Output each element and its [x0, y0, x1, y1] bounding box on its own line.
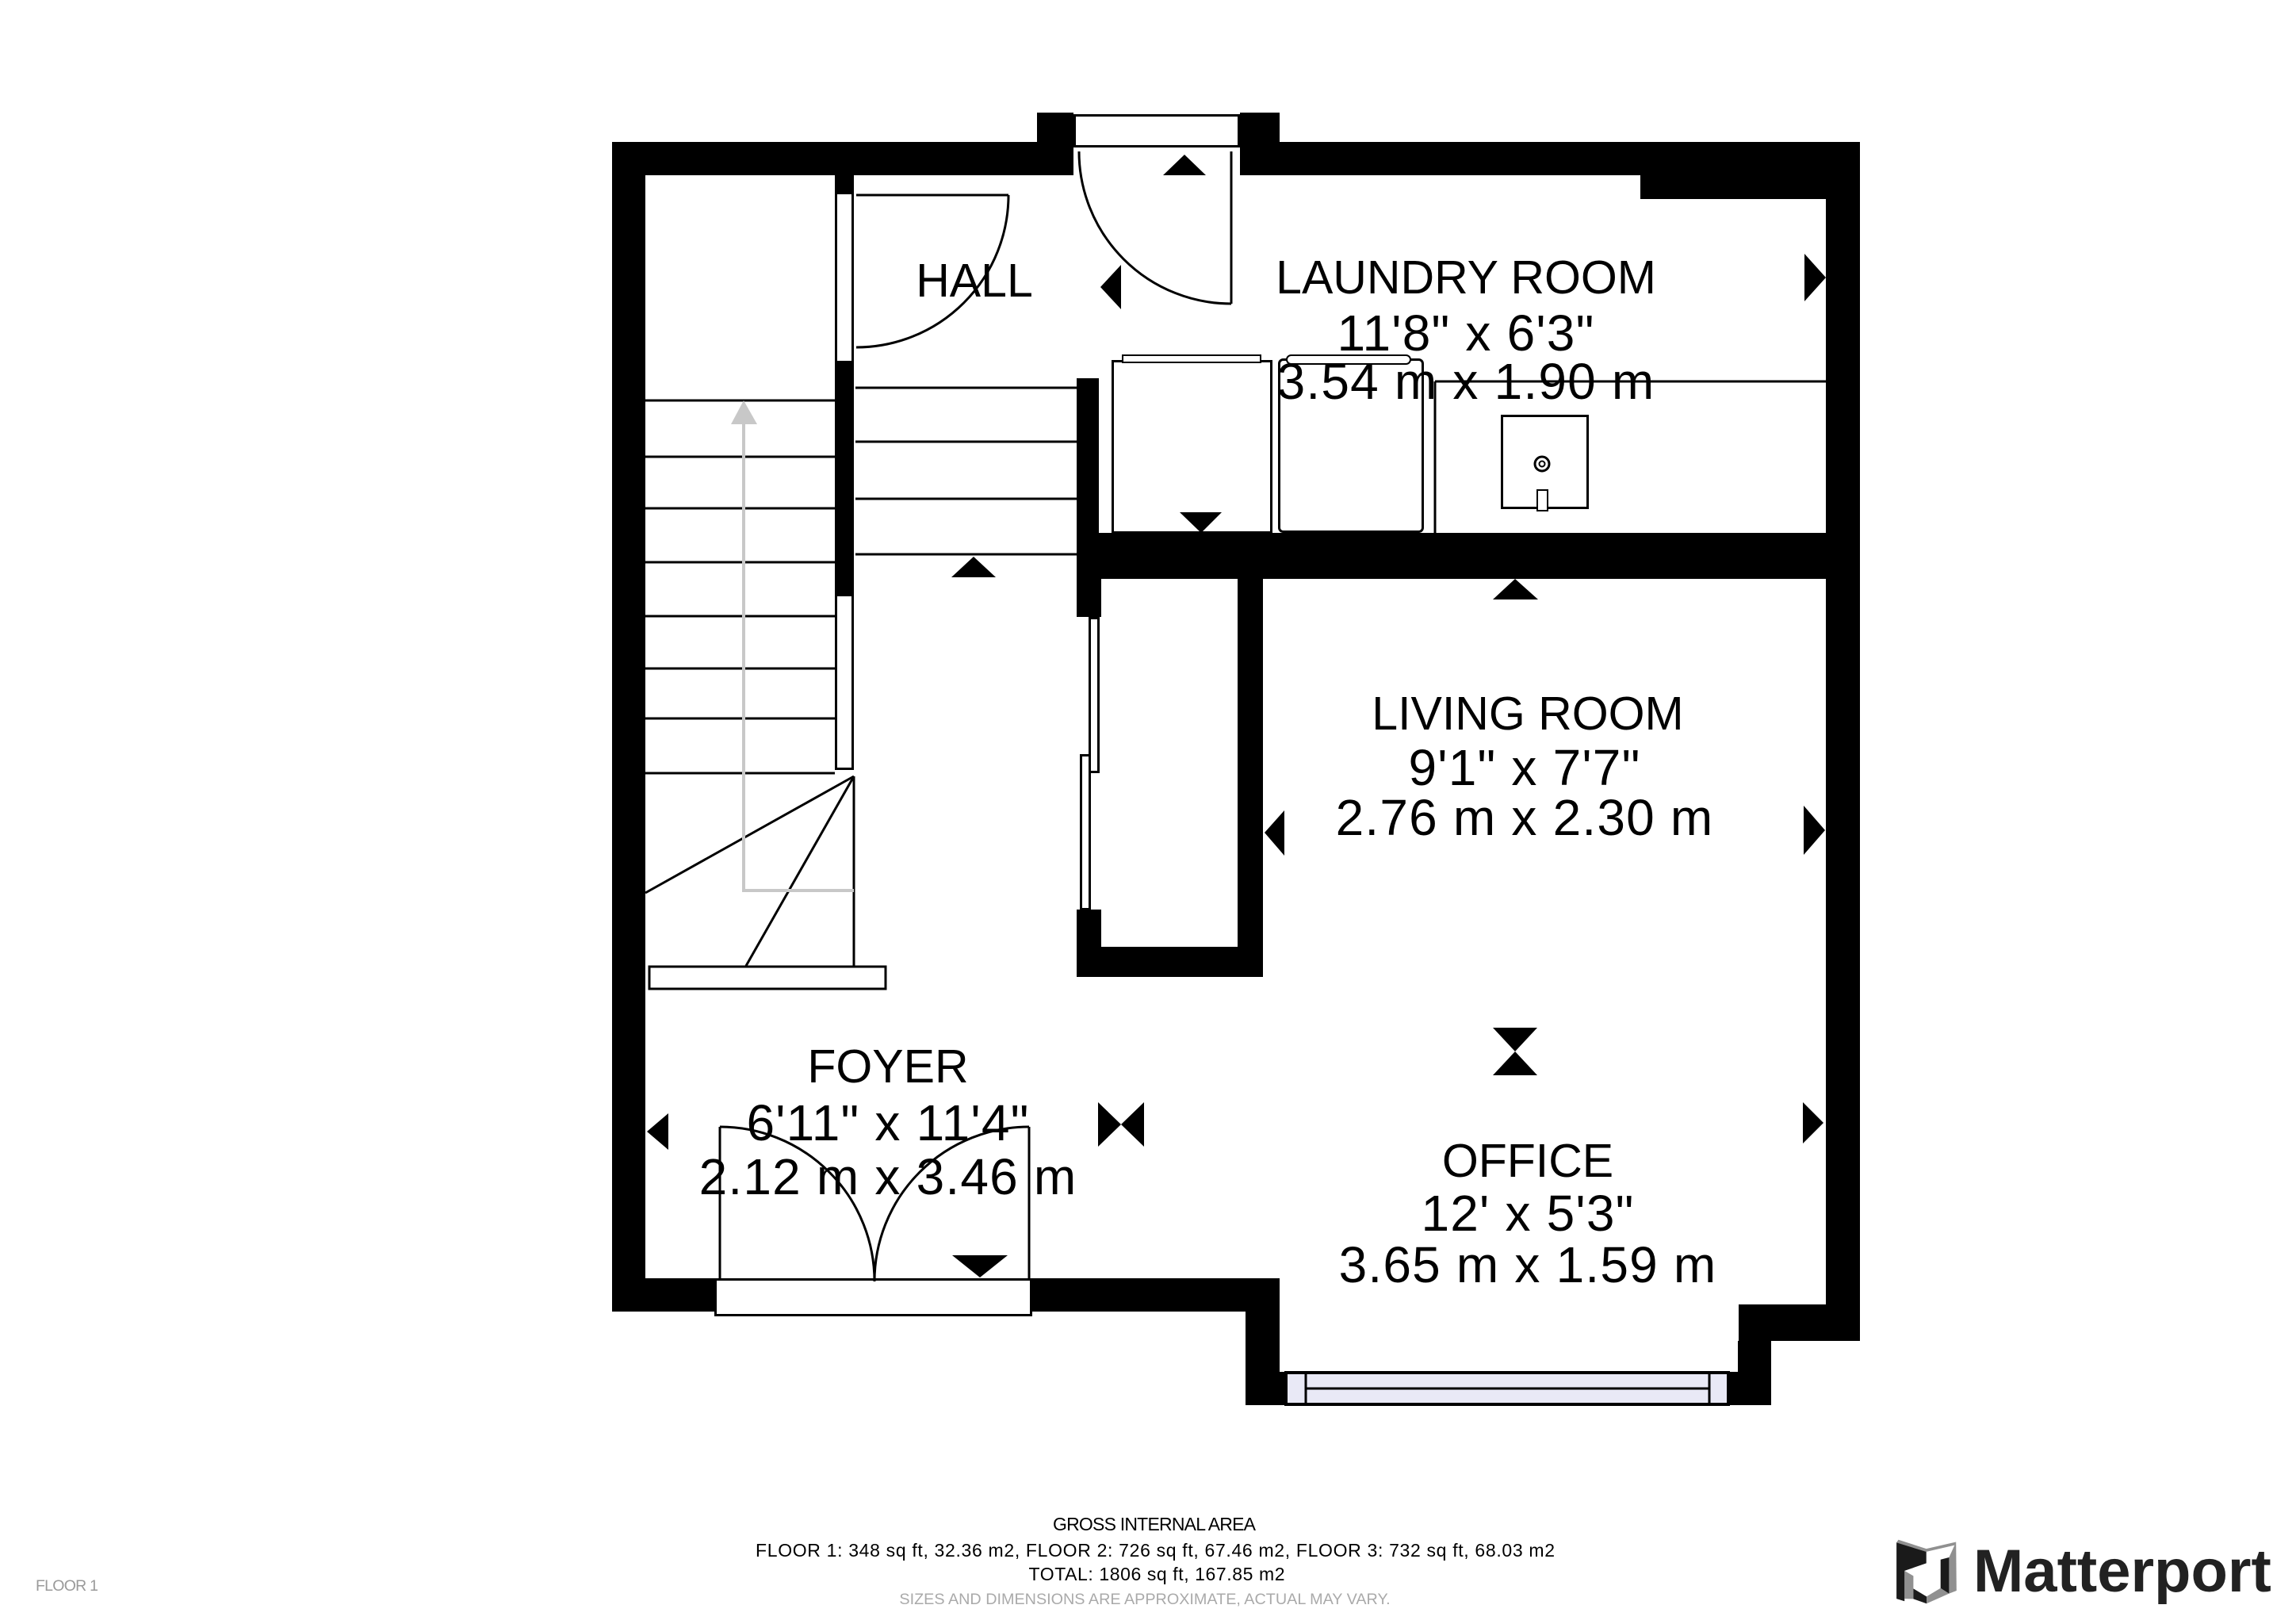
svg-text:3.54 m x 1.90 m: 3.54 m x 1.90 m	[1277, 353, 1655, 410]
svg-text:LAUNDRY ROOM: LAUNDRY ROOM	[1276, 251, 1656, 304]
svg-text:FLOOR 1: FLOOR 1	[36, 1577, 98, 1595]
svg-text:3.65 m x 1.59 m: 3.65 m x 1.59 m	[1339, 1236, 1717, 1293]
svg-text:2.12 m x 3.46 m: 2.12 m x 3.46 m	[699, 1148, 1077, 1205]
svg-text:FLOOR 1: 348 sq ft, 32.36 m2,: FLOOR 1: 348 sq ft, 32.36 m2, FLOOR 2: 7…	[756, 1540, 1555, 1561]
svg-text:GROSS INTERNAL AREA: GROSS INTERNAL AREA	[1053, 1514, 1257, 1534]
svg-text:Matterport: Matterport	[1973, 1538, 2271, 1605]
svg-text:SIZES AND DIMENSIONS ARE APPRO: SIZES AND DIMENSIONS ARE APPROXIMATE, AC…	[899, 1591, 1390, 1608]
svg-text:9'1" x 7'7": 9'1" x 7'7"	[1408, 739, 1640, 796]
svg-text:OFFICE: OFFICE	[1442, 1135, 1613, 1187]
svg-text:12' x 5'3": 12' x 5'3"	[1421, 1185, 1634, 1242]
svg-text:TOTAL: 1806 sq ft, 167.85 m2: TOTAL: 1806 sq ft, 167.85 m2	[1029, 1564, 1285, 1584]
svg-text:FOYER: FOYER	[807, 1040, 968, 1093]
svg-text:LIVING ROOM: LIVING ROOM	[1372, 688, 1683, 740]
svg-text:HALL: HALL	[916, 255, 1033, 307]
svg-text:2.76 m x 2.30 m: 2.76 m x 2.30 m	[1336, 789, 1714, 846]
svg-text:6'11" x 11'4": 6'11" x 11'4"	[746, 1094, 1029, 1151]
